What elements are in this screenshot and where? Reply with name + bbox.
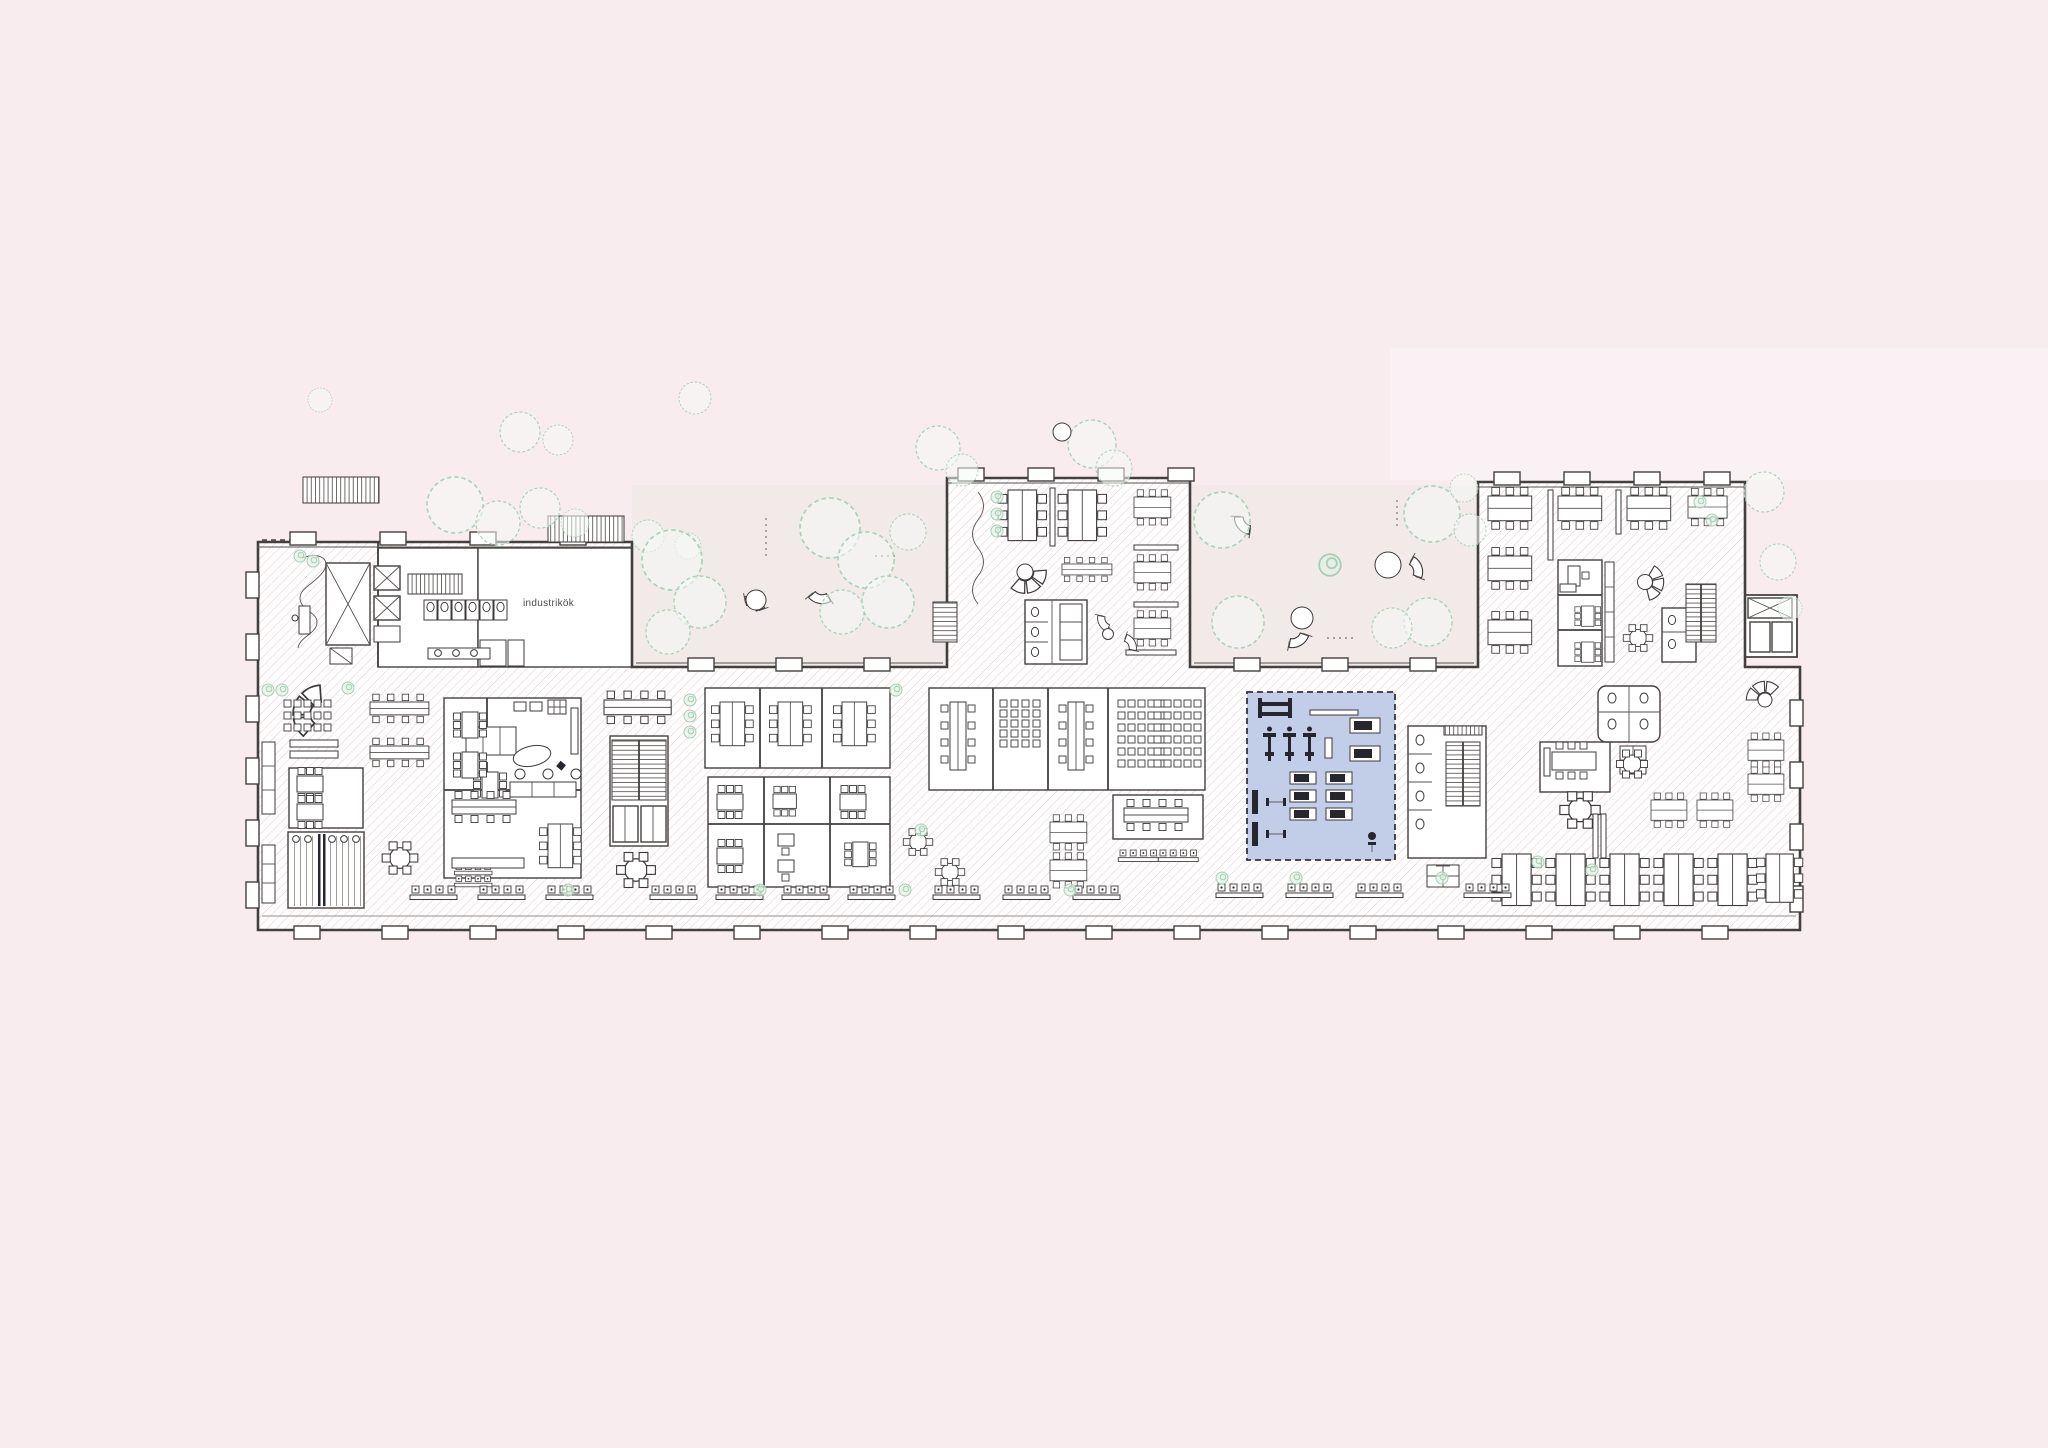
stairs-left-wing bbox=[408, 574, 462, 594]
exterior-stair-center-wing bbox=[933, 602, 957, 642]
top-terrain-band bbox=[1390, 348, 2048, 480]
elevator bbox=[374, 596, 400, 620]
elevator bbox=[374, 566, 400, 590]
stairs-right-wing bbox=[1686, 584, 1716, 642]
white-meeting-rooms bbox=[711, 702, 875, 746]
industrial-kitchen-label: industrikök bbox=[523, 598, 575, 609]
floor-plan-canvas: industrikök bbox=[0, 0, 2048, 1448]
wardrobe-curtains bbox=[290, 834, 362, 906]
